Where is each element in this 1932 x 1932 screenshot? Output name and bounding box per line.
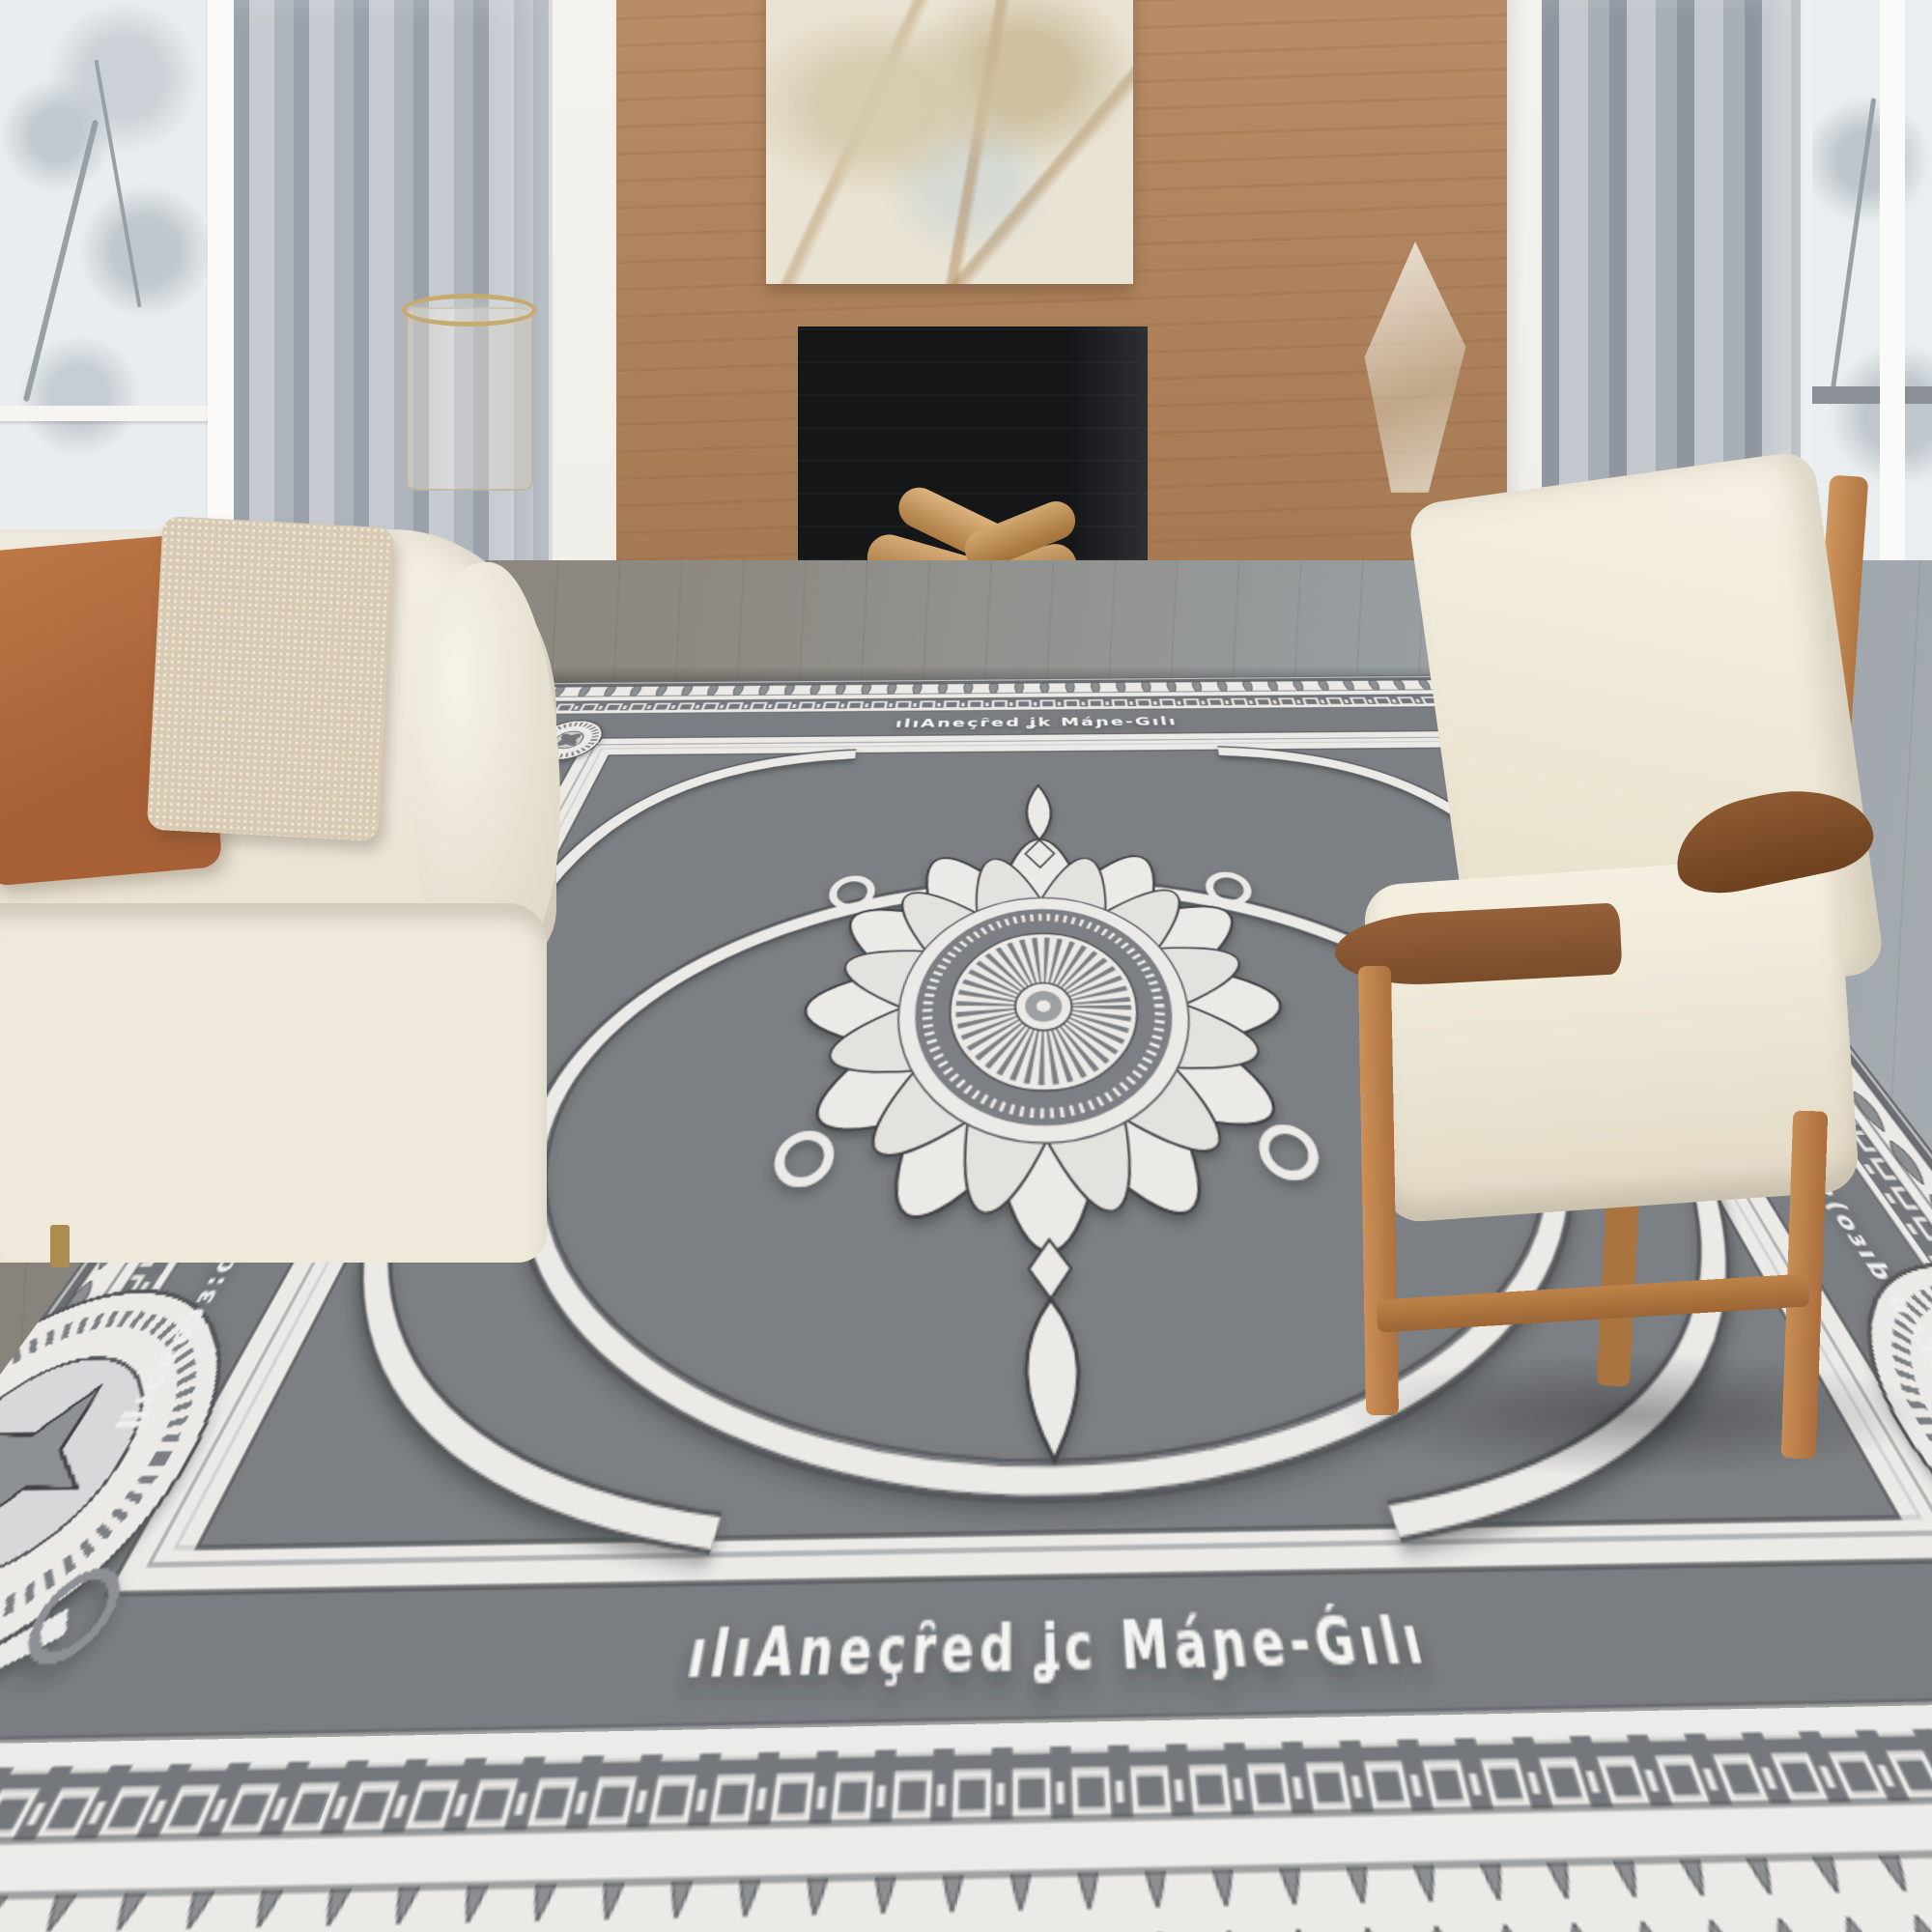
living-room-scene: ılıAneçȓed ʝk Máɲe-Gılı ılıAneçȓed ʝc Má… xyxy=(0,0,1932,1932)
glass-vase xyxy=(406,307,533,491)
sofa-leg xyxy=(50,1225,70,1267)
sofa-seat xyxy=(0,903,547,1263)
armchair-shadow xyxy=(1333,1352,1932,1478)
left-window-glass xyxy=(0,0,213,570)
beige-pillow xyxy=(147,516,395,841)
left-window-sash xyxy=(0,406,213,421)
glass-vase-rim xyxy=(402,294,537,327)
rug-top-inscription: ılıAneçȓed ʝk Máɲe-Gılı xyxy=(895,715,1179,730)
abstract-artwork xyxy=(766,0,1133,284)
right-window-sash xyxy=(1812,386,1932,404)
